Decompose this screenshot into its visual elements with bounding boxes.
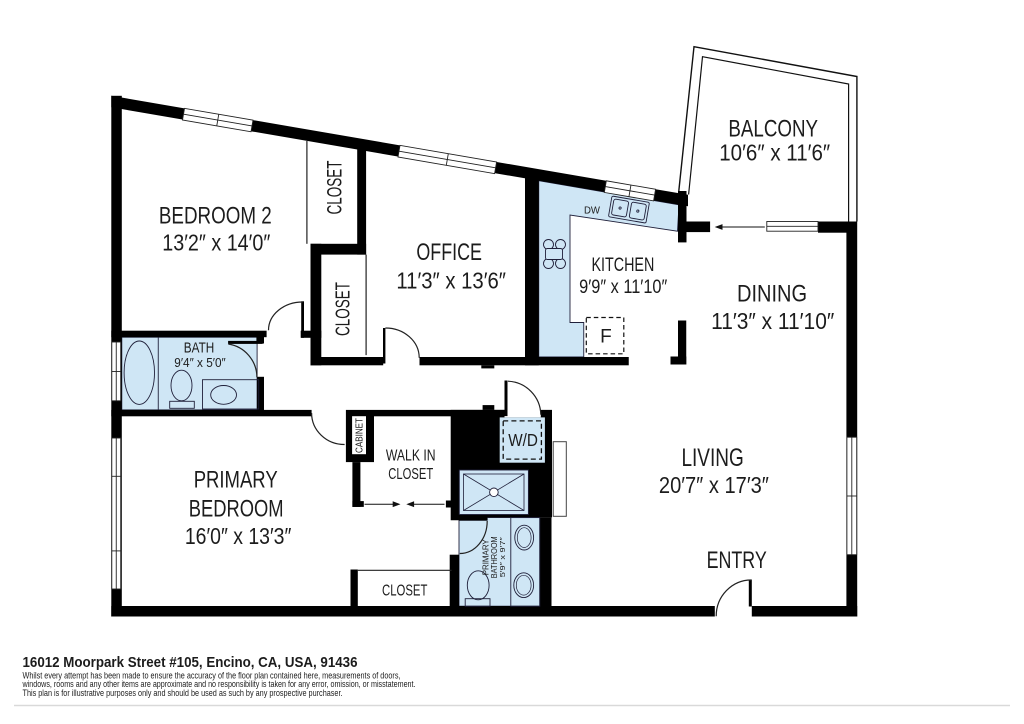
svg-text:This plan is for illustrative: This plan is for illustrative purposes o… [23, 688, 343, 698]
svg-text:11′3″ x 13′6″: 11′3″ x 13′6″ [396, 267, 506, 293]
svg-text:ENTRY: ENTRY [707, 547, 767, 574]
svg-text:DW: DW [584, 206, 601, 217]
svg-text:CLOSET: CLOSET [388, 466, 433, 483]
svg-text:F: F [600, 327, 612, 348]
svg-text:20′7″ x 17′3″: 20′7″ x 17′3″ [659, 472, 769, 498]
svg-text:PRIMARY: PRIMARY [194, 466, 278, 493]
svg-text:DINING: DINING [737, 281, 807, 308]
svg-text:11′3″ x 11′10″: 11′3″ x 11′10″ [711, 308, 834, 334]
svg-text:5′9″ x 9′7″: 5′9″ x 9′7″ [498, 537, 507, 577]
svg-text:13′2″ x 14′0″: 13′2″ x 14′0″ [162, 229, 270, 255]
svg-text:CLOSET: CLOSET [333, 282, 355, 336]
svg-text:CABINET: CABINET [355, 418, 366, 453]
svg-text:BALCONY: BALCONY [728, 115, 818, 142]
svg-text:10′6″ x 11′6″: 10′6″ x 11′6″ [719, 140, 830, 166]
svg-text:9′9″ x 11′10″: 9′9″ x 11′10″ [579, 277, 667, 298]
svg-text:W/D: W/D [508, 430, 538, 450]
svg-text:BEDROOM: BEDROOM [189, 496, 284, 523]
svg-text:BEDROOM 2: BEDROOM 2 [159, 204, 272, 230]
svg-text:16012 Moorpark Street #105, En: 16012 Moorpark Street #105, Encino, CA, … [23, 654, 358, 671]
svg-text:PRIMARY: PRIMARY [481, 539, 490, 576]
svg-text:OFFICE: OFFICE [416, 239, 482, 266]
svg-text:LIVING: LIVING [681, 445, 743, 472]
svg-text:WALK IN: WALK IN [386, 448, 436, 465]
svg-text:CLOSET: CLOSET [382, 583, 428, 600]
svg-text:CLOSET: CLOSET [323, 160, 346, 214]
svg-text:9′4″ x 5′0″: 9′4″ x 5′0″ [174, 355, 226, 370]
svg-text:16′0″ x 13′3″: 16′0″ x 13′3″ [185, 523, 292, 549]
svg-text:KITCHEN: KITCHEN [592, 255, 655, 276]
